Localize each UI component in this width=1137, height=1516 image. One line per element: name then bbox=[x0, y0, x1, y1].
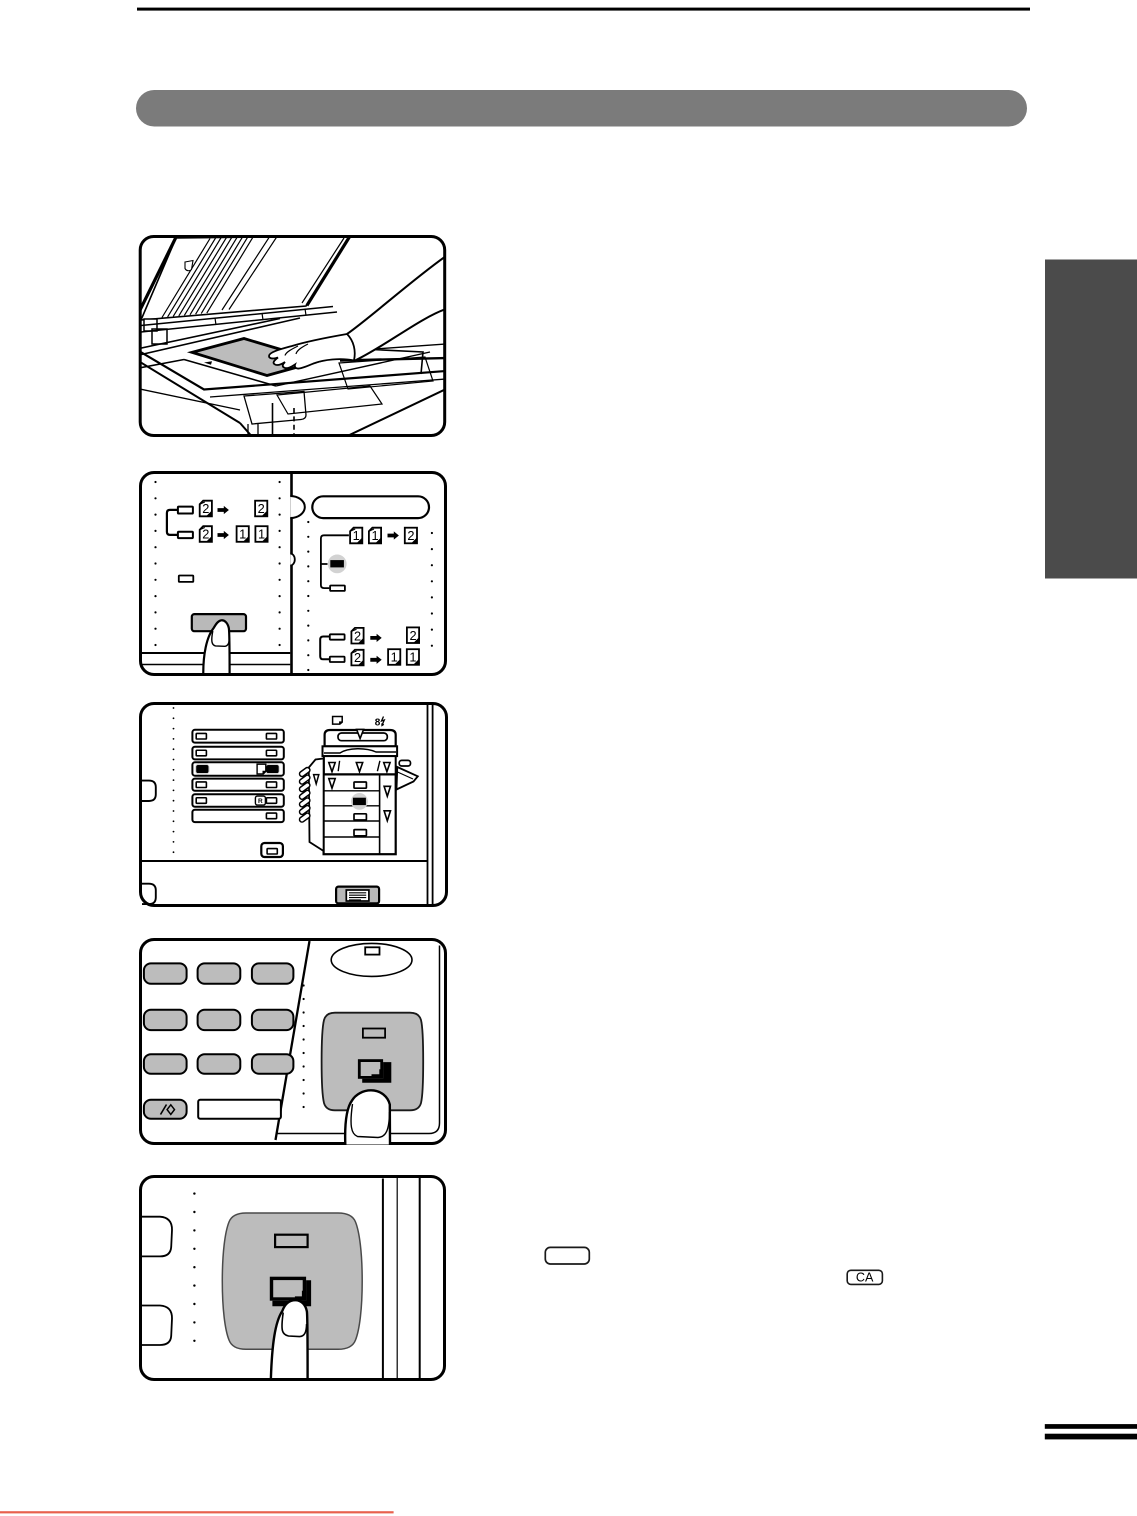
svg-text:2: 2 bbox=[202, 501, 209, 516]
svg-text:2: 2 bbox=[202, 527, 209, 542]
svg-text:1: 1 bbox=[371, 528, 378, 543]
svg-text:1: 1 bbox=[391, 650, 398, 665]
svg-text:R: R bbox=[258, 798, 263, 805]
svg-text:2: 2 bbox=[407, 528, 414, 543]
svg-text:1: 1 bbox=[239, 527, 246, 542]
svg-text:8: 8 bbox=[375, 718, 381, 729]
svg-text:CA: CA bbox=[856, 1271, 874, 1285]
svg-text:2: 2 bbox=[409, 628, 416, 643]
svg-text:1: 1 bbox=[409, 650, 416, 665]
svg-text:2: 2 bbox=[354, 650, 361, 665]
svg-text:2: 2 bbox=[354, 628, 361, 643]
svg-text:2: 2 bbox=[258, 501, 265, 516]
svg-text:1: 1 bbox=[353, 528, 360, 543]
svg-text:1: 1 bbox=[258, 527, 265, 542]
